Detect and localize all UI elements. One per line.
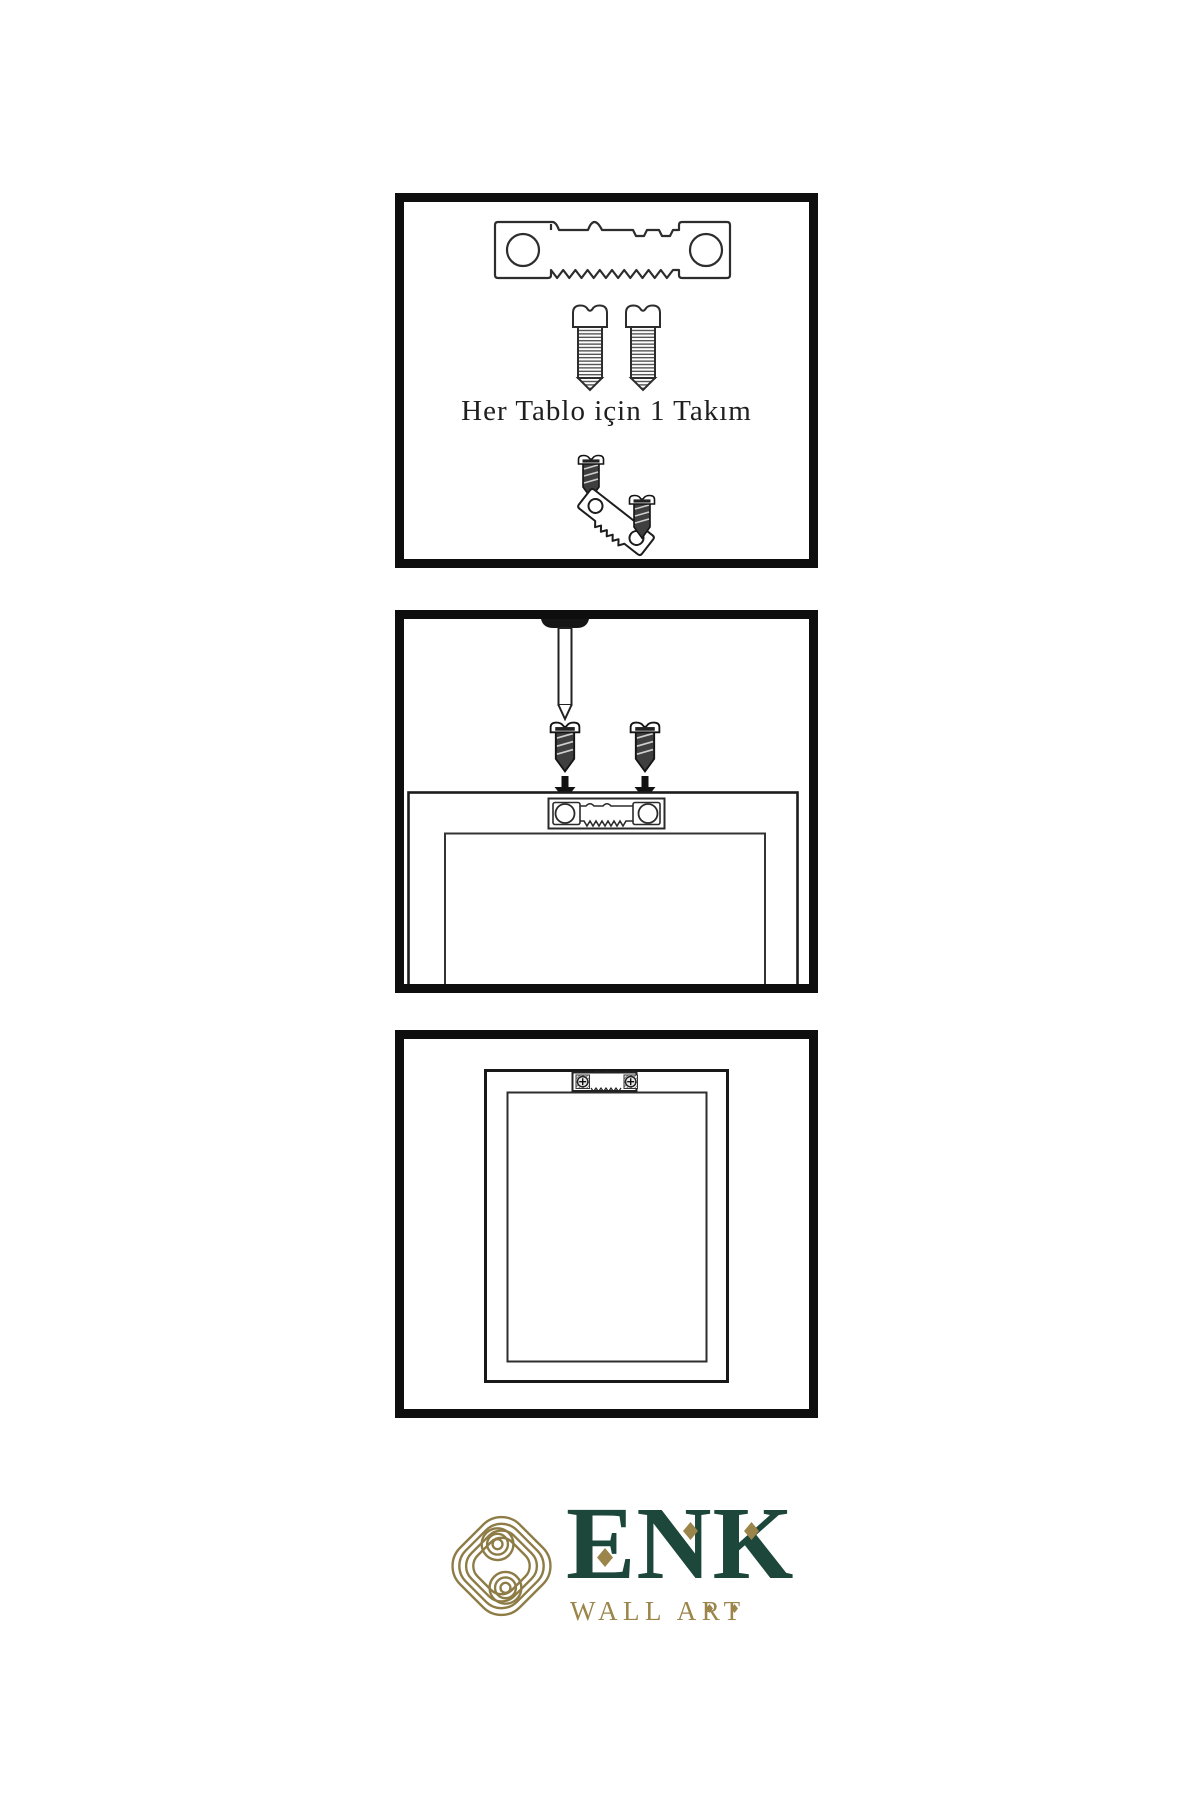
hanger-hole: [507, 234, 539, 266]
hardware-kit-illustration: [404, 202, 809, 559]
step-panel-installation: [395, 610, 818, 993]
nail-icon: [541, 619, 589, 719]
nail-install-illustration: [404, 619, 809, 984]
knot-emblem-icon: [438, 1502, 565, 1630]
instruction-sheet: Her Tablo için 1 Takım: [0, 0, 1200, 1800]
screw-icon: [626, 306, 660, 391]
mounted-hanger-icon: [549, 799, 665, 829]
sawtooth-hanger-icon: [495, 222, 730, 278]
mounted-hanger-icon: [573, 1071, 638, 1092]
hanger-hole: [690, 234, 722, 266]
step-panel-hardware-kit: Her Tablo için 1 Takım: [395, 193, 818, 568]
dark-screw-icon: [551, 723, 580, 772]
step-panel-finished: [395, 1030, 818, 1418]
mounted-frame-illustration: [404, 1039, 809, 1409]
picture-frame-outline: [486, 1071, 728, 1382]
assembly-group: [574, 456, 655, 560]
brand-name: ENK: [566, 1492, 796, 1592]
kit-caption: Her Tablo için 1 Takım: [404, 395, 809, 428]
screw-icon: [573, 306, 607, 391]
brand-tagline: WALL ART: [570, 1596, 746, 1627]
dark-screw-icon: [631, 723, 660, 772]
